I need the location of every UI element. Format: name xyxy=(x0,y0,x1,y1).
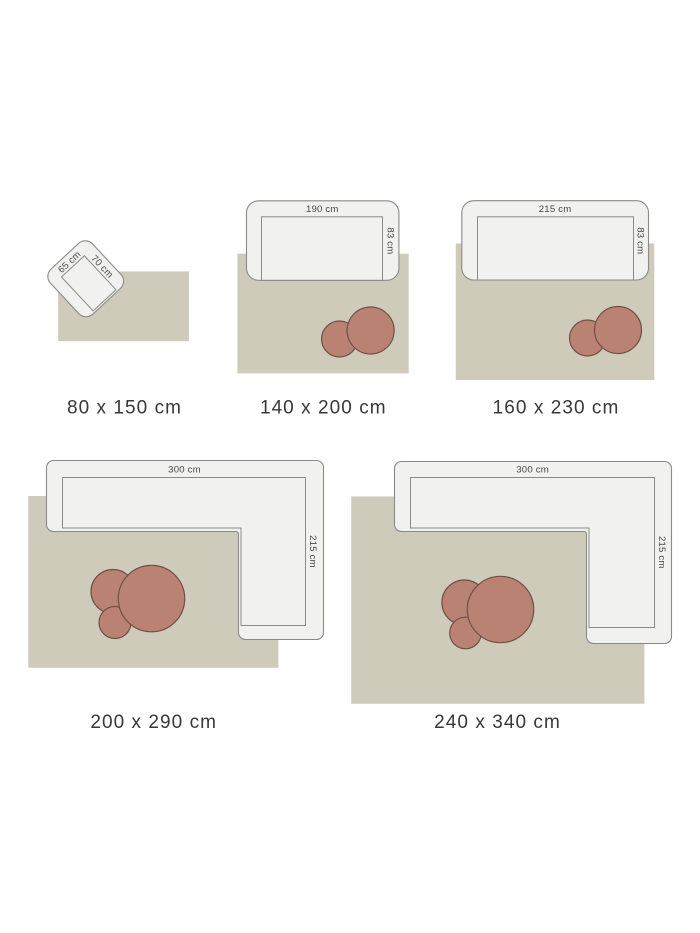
svg-text:300 cm: 300 cm xyxy=(516,465,549,476)
svg-text:215 cm: 215 cm xyxy=(307,535,318,568)
svg-text:83 cm: 83 cm xyxy=(635,227,646,254)
svg-text:83 cm: 83 cm xyxy=(385,227,396,254)
svg-text:300 cm: 300 cm xyxy=(168,465,201,476)
svg-text:160 x 230 cm: 160 x 230 cm xyxy=(493,398,620,419)
svg-text:215 cm: 215 cm xyxy=(539,204,572,215)
svg-text:240 x 340 cm: 240 x 340 cm xyxy=(434,712,561,733)
svg-text:80 x 150 cm: 80 x 150 cm xyxy=(67,398,182,419)
svg-text:140 x 200 cm: 140 x 200 cm xyxy=(260,398,387,419)
svg-text:215 cm: 215 cm xyxy=(656,536,667,569)
svg-text:190 cm: 190 cm xyxy=(306,204,339,215)
svg-text:200 x 290 cm: 200 x 290 cm xyxy=(90,712,217,733)
